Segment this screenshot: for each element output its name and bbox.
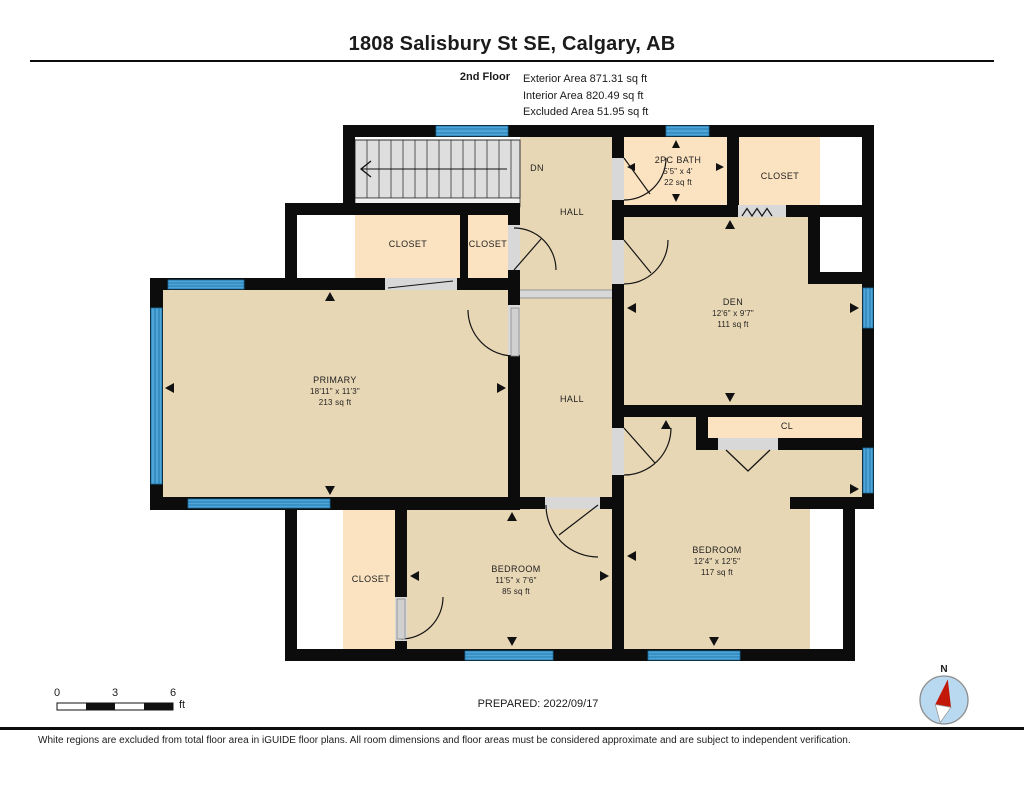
window [151,308,162,484]
room-area: 111 sq ft [712,320,754,329]
window [465,651,553,660]
room-label-closet-mid-2: CLOSET [469,239,507,249]
room-name: CLOSET [761,171,799,181]
room-area: 22 sq ft [655,178,702,187]
room-label-cl: CL [781,421,793,431]
room-name: 2PC BATH [655,155,702,165]
window [863,448,873,493]
window [863,288,873,328]
compass-north-label: N [940,664,947,675]
room-label-bedroom-middle: BEDROOM 11'5" x 7'6" 85 sq ft [491,564,540,596]
den-floor [808,284,862,405]
disclaimer-text: White regions are excluded from total fl… [38,735,998,746]
compass-icon [920,676,968,724]
window [666,126,709,136]
room-label-closet-top-right: CLOSET [761,171,799,181]
room-name: DEN [712,297,754,307]
room-dims: 12'6" x 9'7" [712,309,754,318]
room-area: 85 sq ft [491,587,540,596]
room-label-closet-bottom-left: CLOSET [352,574,390,584]
room-area: 213 sq ft [310,398,360,407]
hall-floor [520,137,612,497]
room-label-den: DEN 12'6" x 9'7" 111 sq ft [712,297,754,329]
room-name: CL [781,421,793,431]
room-label-primary: PRIMARY 18'11" x 11'3" 213 sq ft [310,375,360,407]
room-name: BEDROOM [491,564,540,574]
room-dims: 11'5" x 7'6" [491,576,540,585]
room-label-hall-lower: HALL [560,394,584,404]
room-name: HALL [560,394,584,404]
room-name: CLOSET [389,239,427,249]
room-label-bath: 2PC BATH 5'5" x 4' 22 sq ft [655,155,702,187]
room-label-closet-mid-1: CLOSET [389,239,427,249]
staircase [355,140,520,207]
room-name: DN [530,163,544,173]
floor-plan-canvas [0,0,1024,791]
room-area: 117 sq ft [692,568,741,577]
bedroom-right-floor [624,450,862,497]
bedroom-right-floor [624,509,810,649]
room-label-hall-upper: HALL [560,207,584,217]
room-name: HALL [560,207,584,217]
room-name: BEDROOM [692,545,741,555]
bedroom-right-floor [624,417,696,450]
scale-unit: ft [179,699,185,711]
room-name: PRIMARY [310,375,360,385]
room-dims: 18'11" x 11'3" [310,387,360,396]
scale-tick-3: 3 [112,687,118,699]
bedroom-right-floor [624,497,790,509]
room-dims: 5'5" x 4' [655,167,702,176]
room-name: CLOSET [352,574,390,584]
scale-tick-0: 0 [54,687,60,699]
room-dims: 12'4" x 12'5" [692,557,741,566]
scale-tick-6: 6 [170,687,176,699]
window [436,126,508,136]
room-name: CLOSET [469,239,507,249]
window [168,280,244,289]
footer-divider [0,727,1024,730]
prepared-date: PREPARED: 2022/09/17 [478,698,599,710]
window [648,651,740,660]
floor-plan-page: { "header": { "title": "1808 Salisbury S… [0,0,1024,791]
window [188,499,330,508]
stairs-dn-label: DN [530,163,544,173]
scale-bar [57,703,173,710]
room-label-bedroom-right: BEDROOM 12'4" x 12'5" 117 sq ft [692,545,741,577]
